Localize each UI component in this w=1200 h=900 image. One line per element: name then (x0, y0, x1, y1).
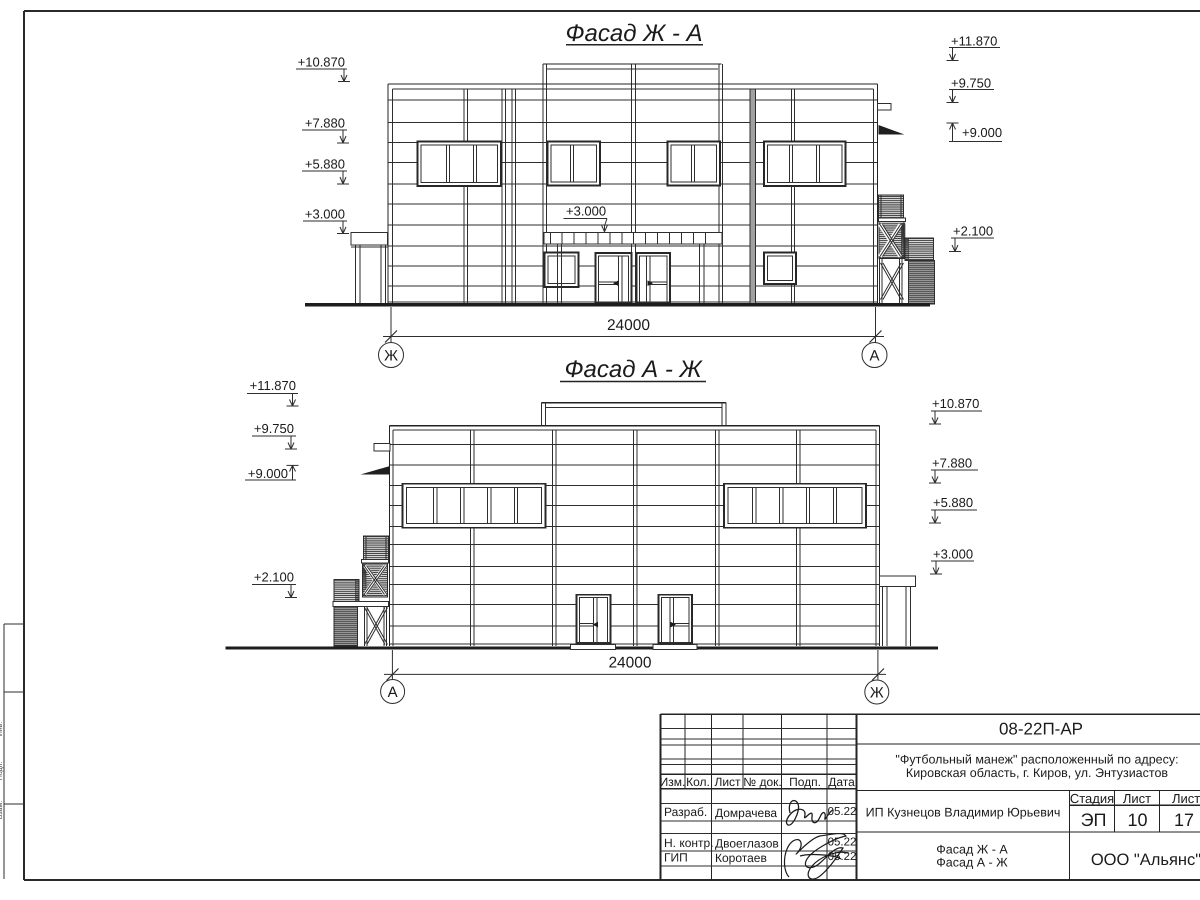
svg-text:А: А (869, 348, 879, 365)
svg-text:17: 17 (1174, 810, 1194, 830)
svg-text:+2.100: +2.100 (254, 570, 294, 585)
svg-text:08-22П-АР: 08-22П-АР (999, 720, 1083, 739)
svg-text:Подп.: Подп. (0, 762, 4, 781)
svg-text:24000: 24000 (608, 655, 651, 672)
svg-text:Листо: Листо (1172, 791, 1200, 806)
svg-text:+9.750: +9.750 (254, 421, 294, 436)
svg-text:Кол.: Кол. (686, 775, 710, 789)
svg-text:24000: 24000 (607, 317, 650, 334)
svg-text:+7.880: +7.880 (305, 116, 345, 131)
svg-text:+10.870: +10.870 (932, 396, 979, 411)
svg-text:+5.880: +5.880 (933, 495, 973, 510)
svg-text:ООО "Альянс": ООО "Альянс" (1091, 851, 1200, 869)
svg-text:+9.000: +9.000 (962, 125, 1002, 140)
svg-text:Стадия: Стадия (1070, 791, 1114, 806)
svg-text:Кировская область, г. Киров, у: Кировская область, г. Киров, ул. Энтузиа… (906, 766, 1168, 780)
svg-text:Лист: Лист (1123, 791, 1151, 806)
svg-text:10: 10 (1127, 810, 1147, 830)
svg-text:ЭП: ЭП (1081, 810, 1107, 830)
svg-text:+3.000: +3.000 (305, 207, 345, 222)
svg-text:+5.880: +5.880 (305, 157, 345, 172)
svg-text:Фасад А - Ж: Фасад А - Ж (564, 356, 703, 383)
svg-text:ГИП: ГИП (664, 851, 688, 865)
svg-text:+9.000: +9.000 (248, 466, 288, 481)
svg-text:Подп.: Подп. (789, 775, 821, 789)
svg-text:05.22: 05.22 (828, 806, 857, 818)
svg-text:Взам.: Взам. (0, 801, 4, 820)
svg-text:+3.000: +3.000 (933, 547, 973, 562)
svg-text:Лист: Лист (714, 775, 741, 789)
svg-text:Двоеглазов: Двоеглазов (715, 837, 779, 851)
svg-text:+11.870: +11.870 (951, 34, 997, 49)
svg-text:+3.000: +3.000 (566, 204, 606, 219)
svg-text:Домрачева: Домрачева (715, 806, 777, 820)
svg-text:"Футбольный манеж" расположенн: "Футбольный манеж" расположенный по адре… (895, 753, 1178, 767)
svg-text:+2.100: +2.100 (953, 224, 993, 239)
svg-text:Дата: Дата (828, 775, 855, 789)
svg-text:05.22: 05.22 (828, 837, 857, 849)
svg-text:Разраб.: Разраб. (664, 805, 707, 819)
svg-text:+9.750: +9.750 (951, 76, 991, 91)
svg-text:Изм.: Изм. (660, 775, 686, 789)
svg-text:Коротаев: Коротаев (715, 851, 767, 865)
svg-text:№ док.: № док. (743, 775, 781, 789)
svg-text:Фасад Ж - А: Фасад Ж - А (565, 20, 702, 47)
svg-text:+11.870: +11.870 (250, 378, 296, 393)
svg-text:Фасад А - Ж: Фасад А - Ж (936, 856, 1008, 870)
svg-text:Инв.: Инв. (0, 722, 4, 737)
svg-text:Н. контр.: Н. контр. (664, 836, 714, 850)
svg-text:Ж: Ж (870, 685, 884, 702)
svg-text:А: А (388, 684, 398, 701)
svg-text:Фасад Ж - А: Фасад Ж - А (936, 843, 1008, 857)
svg-text:Ж: Ж (384, 348, 398, 365)
svg-text:+7.880: +7.880 (932, 456, 972, 471)
svg-text:+10.870: +10.870 (298, 55, 345, 70)
svg-text:ИП Кузнецов Владимир Юрьевич: ИП Кузнецов Владимир Юрьевич (866, 806, 1061, 820)
